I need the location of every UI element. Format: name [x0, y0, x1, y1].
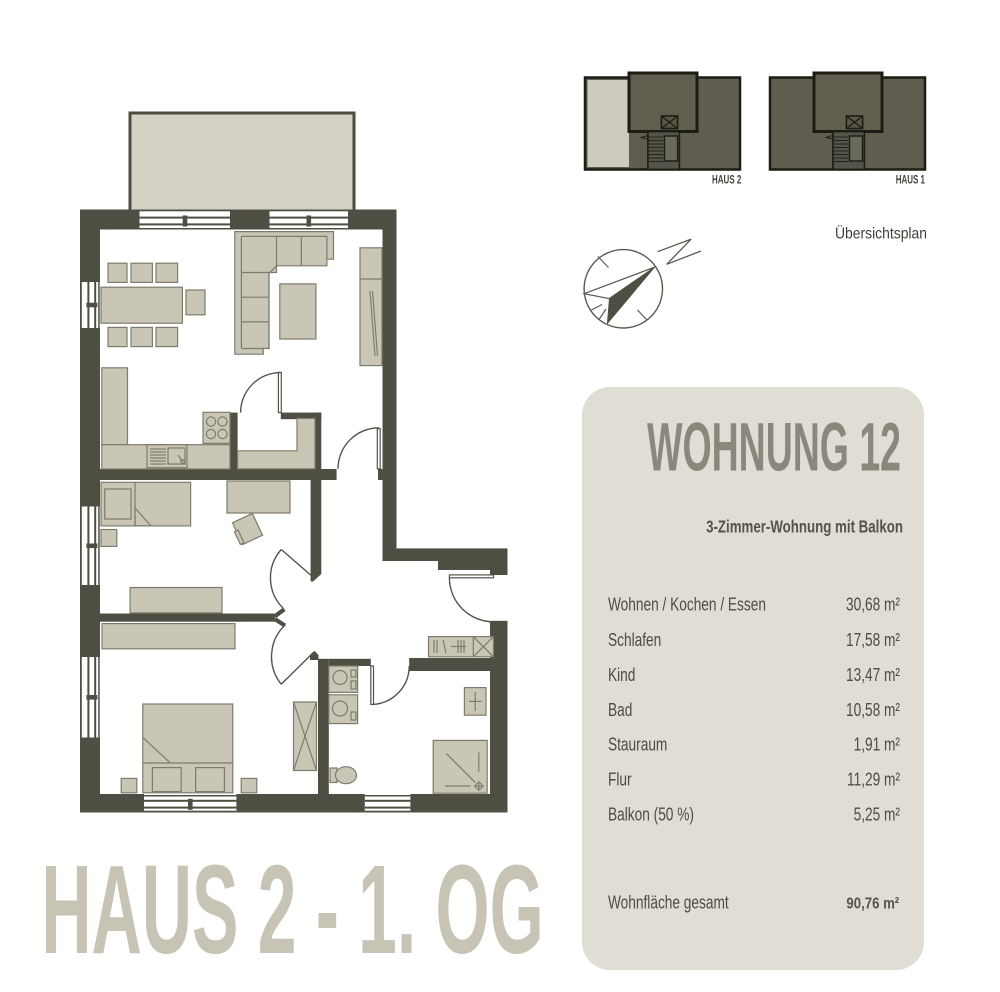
svg-text:30,68 m²: 30,68 m² [846, 595, 900, 615]
svg-text:13,47 m²: 13,47 m² [846, 665, 900, 685]
svg-text:11,29 m²: 11,29 m² [847, 769, 900, 789]
svg-text:HAUS 2: HAUS 2 [712, 174, 742, 187]
svg-text:1,91 m²: 1,91 m² [854, 735, 901, 755]
svg-text:WOHNUNG 12: WOHNUNG 12 [647, 408, 901, 485]
svg-text:Übersichtsplan: Übersichtsplan [835, 224, 927, 243]
svg-text:3-Zimmer-Wohnung mit Balkon: 3-Zimmer-Wohnung mit Balkon [706, 518, 903, 537]
svg-text:10,58 m²: 10,58 m² [846, 700, 900, 720]
svg-text:Bad: Bad [608, 700, 632, 720]
svg-text:5,25 m²: 5,25 m² [854, 805, 901, 825]
svg-text:Stauraum: Stauraum [608, 735, 667, 755]
svg-text:Schlafen: Schlafen [608, 630, 661, 650]
svg-text:HAUS 2 - 1. OG: HAUS 2 - 1. OG [41, 839, 543, 980]
svg-text:17,58 m²: 17,58 m² [846, 630, 900, 650]
svg-text:Balkon (50 %): Balkon (50 %) [608, 805, 694, 825]
svg-text:HAUS 1: HAUS 1 [896, 174, 926, 187]
svg-text:Kind: Kind [608, 665, 635, 685]
svg-text:90,76 m²: 90,76 m² [846, 895, 899, 912]
svg-text:Wohnfläche gesamt: Wohnfläche gesamt [608, 892, 729, 912]
svg-text:Wohnen / Kochen / Essen: Wohnen / Kochen / Essen [608, 595, 766, 615]
svg-text:Flur: Flur [608, 769, 632, 789]
